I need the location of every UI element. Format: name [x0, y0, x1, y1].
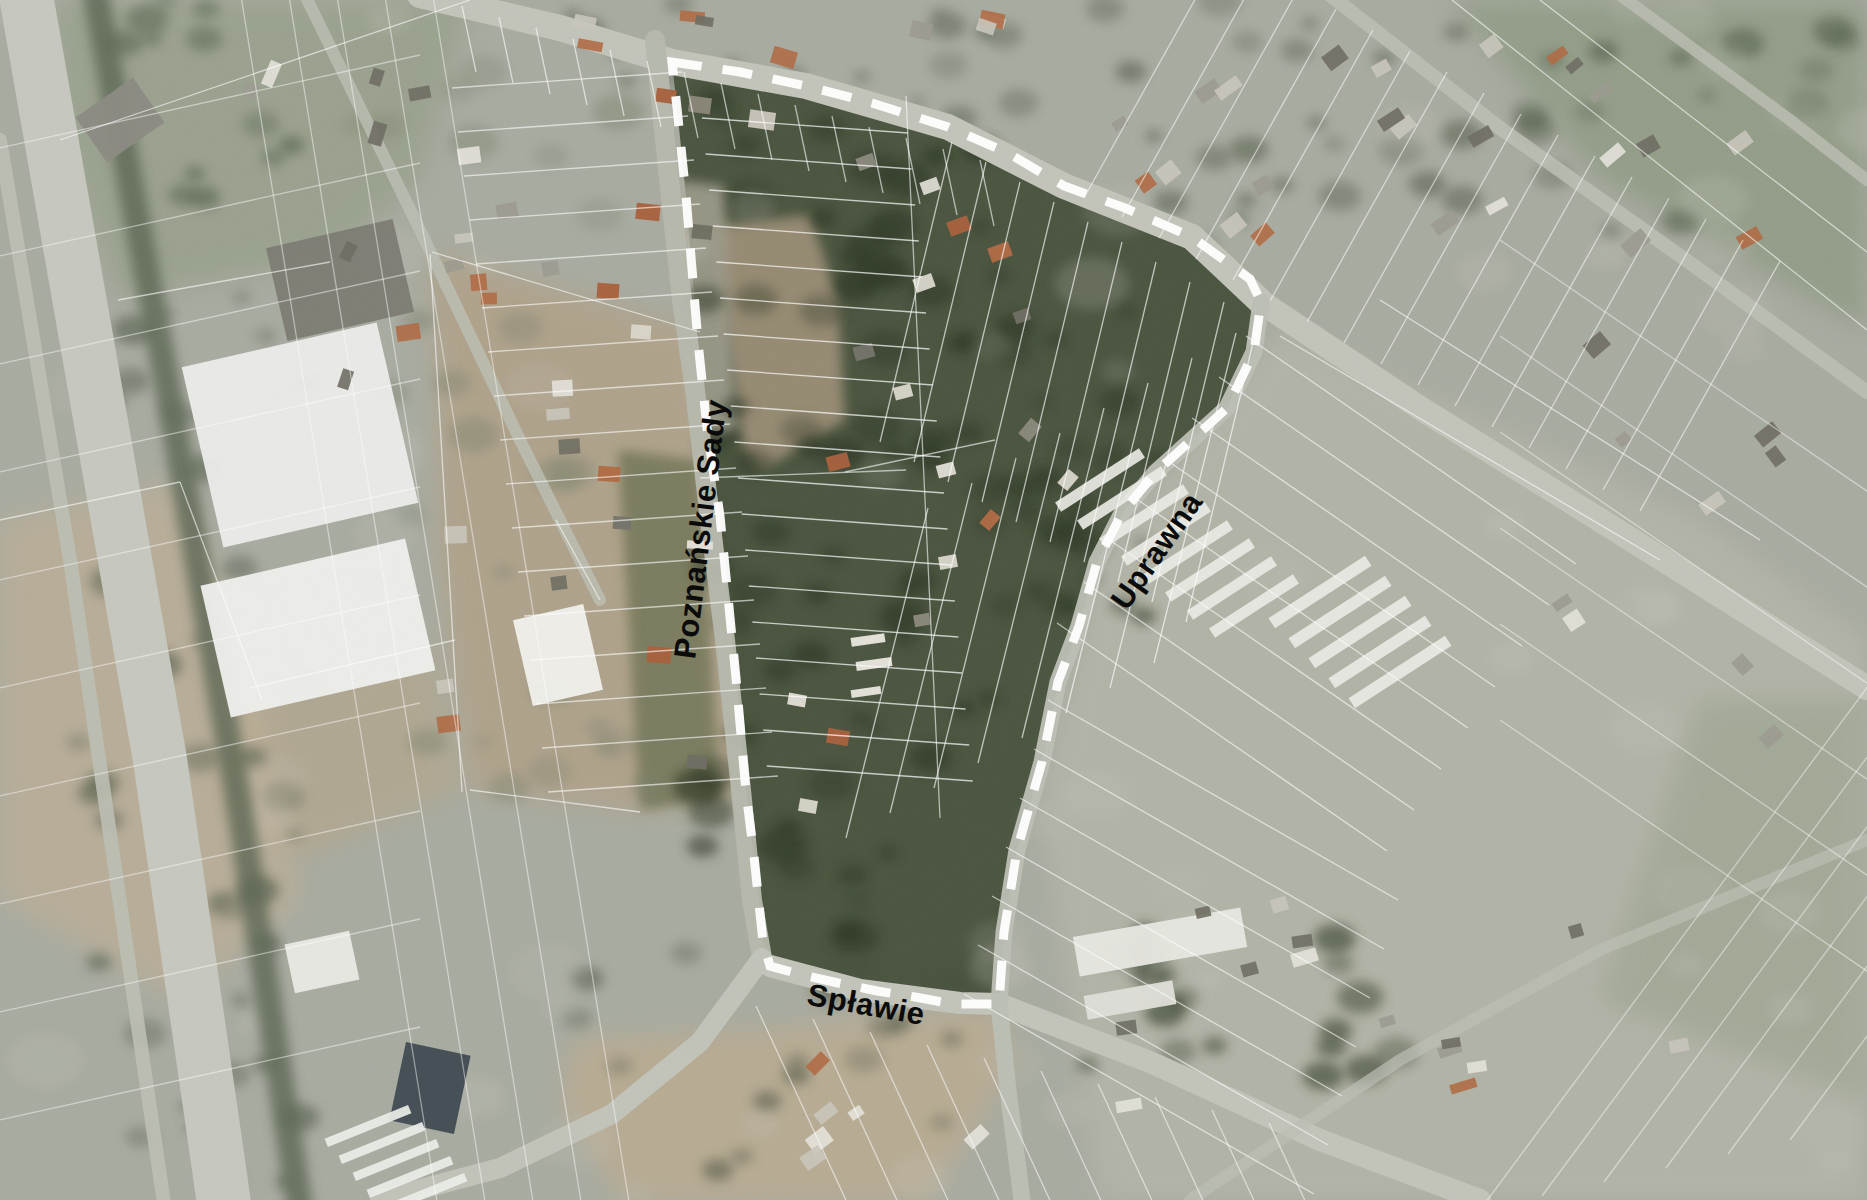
map-canvas[interactable]: [0, 0, 1867, 1200]
aerial-map: Poznańskie Sady Uprawna Spławie: [0, 0, 1867, 1200]
